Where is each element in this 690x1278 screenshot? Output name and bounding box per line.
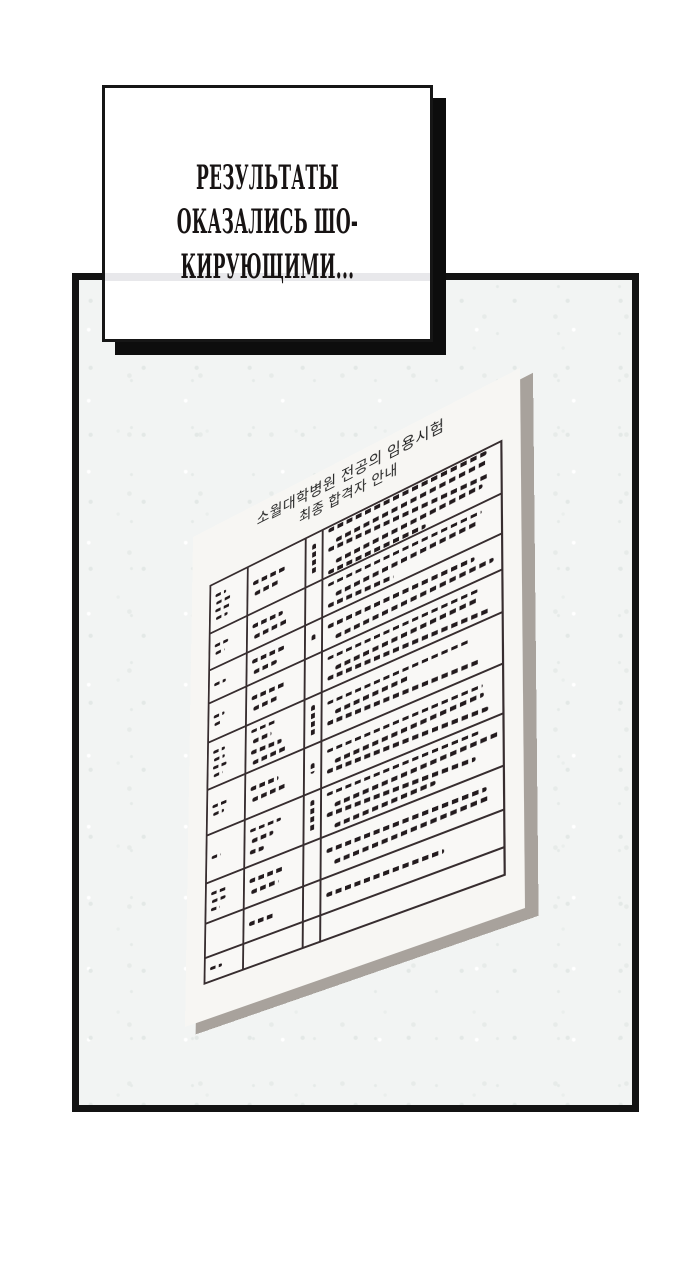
table-cell (305, 693, 322, 747)
scribble-vertical (311, 634, 315, 644)
scribble-line (253, 566, 286, 585)
scribble-vertical (310, 800, 314, 835)
scribble-line (250, 817, 281, 833)
caption-text: РЕЗУЛЬТАТЫ ОКАЗАЛИСЬ ШО- КИРУЮЩИМИ... (177, 156, 358, 289)
scribble-line (251, 719, 277, 734)
scribble-line (252, 830, 273, 843)
table-cell (303, 916, 321, 947)
scribble-line (214, 770, 223, 777)
scribble-line (249, 866, 283, 883)
scribble-line (211, 905, 221, 911)
table-cell (304, 742, 322, 794)
caption-line-2: ОКАЗАЛИСЬ ШО- (177, 200, 358, 244)
scribble-line (212, 852, 221, 859)
scribble-line (212, 894, 226, 903)
scribble-line (213, 761, 226, 770)
caption-line-3: КИРУЮЩИМИ... (177, 245, 358, 289)
scribble-vertical (311, 705, 315, 737)
scribble-line (210, 963, 222, 971)
scribble-line (214, 753, 225, 761)
scribble-vertical (310, 763, 314, 774)
scribble-line (216, 611, 228, 620)
scribble-line (253, 731, 272, 743)
scribble-line (215, 638, 228, 647)
scribble-line (250, 845, 264, 854)
table-cell (304, 789, 322, 843)
scribble-line (215, 719, 223, 726)
caption-box: РЕЗУЛЬТАТЫ ОКАЗАЛИСЬ ШО- КИРУЮЩИМИ... (102, 85, 433, 342)
scribble-line (252, 681, 287, 700)
scribble-line (212, 799, 227, 808)
scribble-line (214, 808, 225, 816)
scribble-line (215, 589, 226, 597)
scribble-line (211, 886, 227, 895)
scribble-vertical (312, 544, 316, 575)
scribble-line (249, 913, 275, 926)
scribble-line (214, 678, 226, 686)
comic-page: 소월대학병원 전공의 임용시험 최종 합격자 안내 РЕЗУЛЬТАТЫ ОКА… (0, 0, 690, 1278)
scribble-line (216, 647, 225, 655)
scribble-line (214, 711, 225, 719)
caption-line-1: РЕЗУЛЬТАТЫ (177, 156, 358, 200)
scribble-line (213, 745, 225, 753)
scribble-line (252, 645, 285, 664)
